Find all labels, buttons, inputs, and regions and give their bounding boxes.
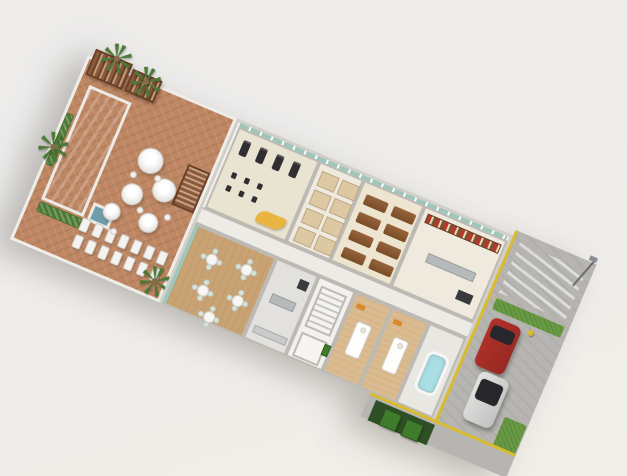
sun-lounger [122,255,136,271]
reception-desk [254,208,287,233]
exercise-bike [243,177,250,184]
sun-lounger [129,239,143,255]
sun-lounger [142,244,156,260]
relax-lounger [340,246,366,266]
massage-table-headrest [359,327,367,335]
palm-trunk [142,78,150,86]
sun-lounger [71,234,85,250]
dining-chair [215,259,223,267]
exercise-bike [256,183,263,190]
dining-table-group [232,256,261,285]
sun-lounger [84,239,98,255]
deck-chair [129,170,138,179]
massage-table [344,320,373,359]
shop-shelf [425,253,477,283]
exercise-bike [230,172,237,179]
relax-lounger [363,194,389,214]
treadmill [271,154,285,172]
relax-lounger [390,206,416,226]
dining-table-group [195,303,224,332]
deck-chair [163,213,172,222]
floorplan-render [0,0,627,476]
locker-stall [301,208,325,230]
shop-counter [455,290,474,305]
locker-stall [308,189,332,211]
dining-chair [206,290,214,298]
exercise-bike [225,185,232,192]
dumpster [379,408,403,432]
treadmill [255,147,269,165]
dining-chair [241,300,249,308]
palm-trunk [49,143,57,151]
sun-lounger [109,250,123,266]
dumpster [400,419,424,443]
massage-table-headrest [396,342,404,350]
towel-stack [392,319,402,327]
kitchen-island [269,293,297,312]
locker-stall [293,226,317,248]
dining-table-group [189,276,218,305]
palm-trunk [113,55,121,63]
palm-trunk [151,277,159,285]
relax-lounger [368,258,394,278]
massage-table [380,336,409,375]
dining-table-group [197,245,226,274]
parasol-icon [134,144,168,178]
hot-tub [412,349,451,399]
treadmill [288,161,302,179]
dining-chair [250,269,258,277]
car-windshield [474,378,505,408]
sun-lounger [155,250,169,266]
towel-stack [356,303,366,311]
relax-lounger [383,223,409,243]
kitchen-range [297,279,310,292]
locker-stall [316,171,340,193]
red-car [473,316,523,376]
relax-lounger [348,229,374,249]
building-plan [10,55,594,454]
relax-lounger [355,211,381,231]
treadmill [238,140,252,158]
parasol-icon [118,180,147,209]
exercise-bike [238,190,245,197]
flag [589,255,598,263]
dining-chair [213,316,221,324]
exercise-bike [251,196,258,203]
sun-lounger [97,245,111,261]
sun-lounger [117,233,131,249]
sun-lounger [91,223,105,239]
dining-table-group [223,287,252,316]
bollard [527,329,535,337]
kitchen-counter [252,325,288,346]
relax-lounger [375,241,401,261]
car-windshield [489,324,517,346]
